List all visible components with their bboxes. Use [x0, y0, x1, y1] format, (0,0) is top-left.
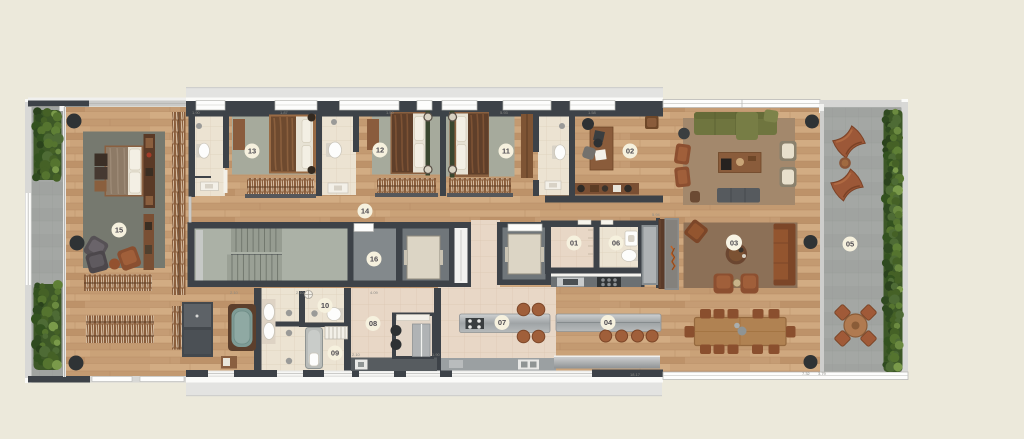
svg-text:1.87: 1.87 [280, 110, 289, 115]
svg-text:1.50: 1.50 [386, 110, 395, 115]
svg-text:01: 01 [570, 239, 578, 248]
svg-text:1.90: 1.90 [192, 110, 201, 115]
svg-text:05: 05 [846, 240, 854, 249]
svg-text:13: 13 [248, 147, 256, 156]
svg-text:15: 15 [115, 226, 123, 235]
svg-text:3.79: 3.79 [818, 371, 827, 376]
svg-text:06: 06 [612, 239, 620, 248]
svg-text:16: 16 [370, 255, 378, 264]
svg-text:18.17: 18.17 [630, 372, 641, 377]
svg-text:5.94: 5.94 [652, 212, 661, 217]
svg-text:5.93: 5.93 [500, 110, 509, 115]
svg-text:03: 03 [730, 238, 738, 247]
svg-text:4.09: 4.09 [370, 290, 379, 295]
svg-text:04: 04 [604, 318, 613, 327]
svg-text:10: 10 [321, 301, 329, 310]
svg-text:2.10: 2.10 [296, 290, 305, 295]
svg-text:1.90: 1.90 [432, 352, 441, 357]
svg-text:02: 02 [626, 147, 634, 156]
svg-text:2.10: 2.10 [230, 290, 239, 295]
svg-text:11: 11 [502, 147, 510, 156]
svg-text:7.32: 7.32 [802, 371, 811, 376]
svg-text:12: 12 [376, 146, 384, 155]
svg-text:09: 09 [331, 349, 339, 358]
svg-text:1.58: 1.58 [588, 110, 597, 115]
svg-text:08: 08 [369, 319, 377, 328]
svg-text:07: 07 [498, 318, 506, 327]
svg-text:2.10: 2.10 [352, 352, 361, 357]
svg-text:14: 14 [361, 207, 370, 216]
